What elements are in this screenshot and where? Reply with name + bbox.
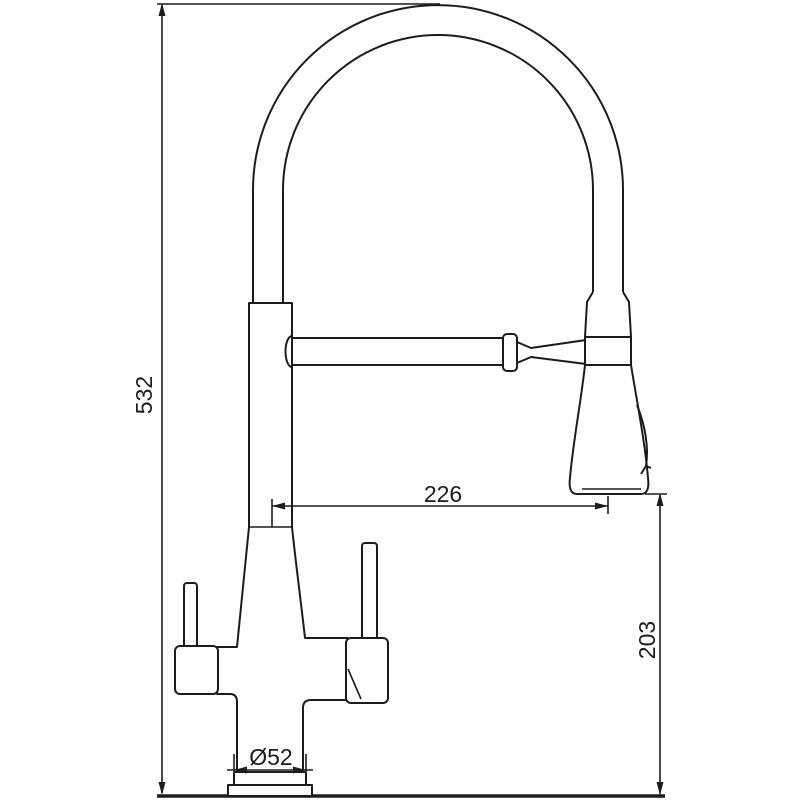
dimension-spout-reach: 226: [272, 481, 608, 527]
dim-label-head-to-deck: 203: [634, 621, 660, 659]
arm-nozzle: [517, 340, 586, 364]
right-handle-base: [346, 638, 388, 703]
right-handle: [346, 543, 388, 703]
support-arm: [286, 334, 586, 371]
left-lever: [184, 583, 197, 649]
technical-drawing-page: 532 226 203: [0, 0, 800, 800]
head-collar: [585, 337, 631, 365]
spray-head: [570, 292, 651, 494]
right-lever: [362, 543, 377, 642]
head-neck: [585, 292, 631, 337]
arm-flange: [503, 334, 517, 371]
faucet-base: [228, 772, 312, 796]
arrow-right-icon: [595, 503, 608, 510]
dim-label-base-diameter: Ø52: [249, 744, 292, 770]
faucet-drawing: 532 226 203: [0, 0, 800, 800]
dimension-head-to-deck: 203: [634, 493, 667, 795]
arrow-down-icon: [657, 782, 664, 795]
dim-label-overall-height: 532: [131, 376, 157, 414]
head-bell: [570, 365, 649, 494]
arrow-up-icon: [159, 3, 166, 16]
hose-arc: [253, 5, 623, 303]
left-handle-base: [175, 646, 218, 694]
faucet-body: [217, 303, 348, 772]
arrow-up-icon: [657, 493, 664, 506]
dim-label-spout-reach: 226: [424, 481, 462, 507]
arrow-down-icon: [159, 782, 166, 795]
left-handle: [175, 583, 218, 694]
